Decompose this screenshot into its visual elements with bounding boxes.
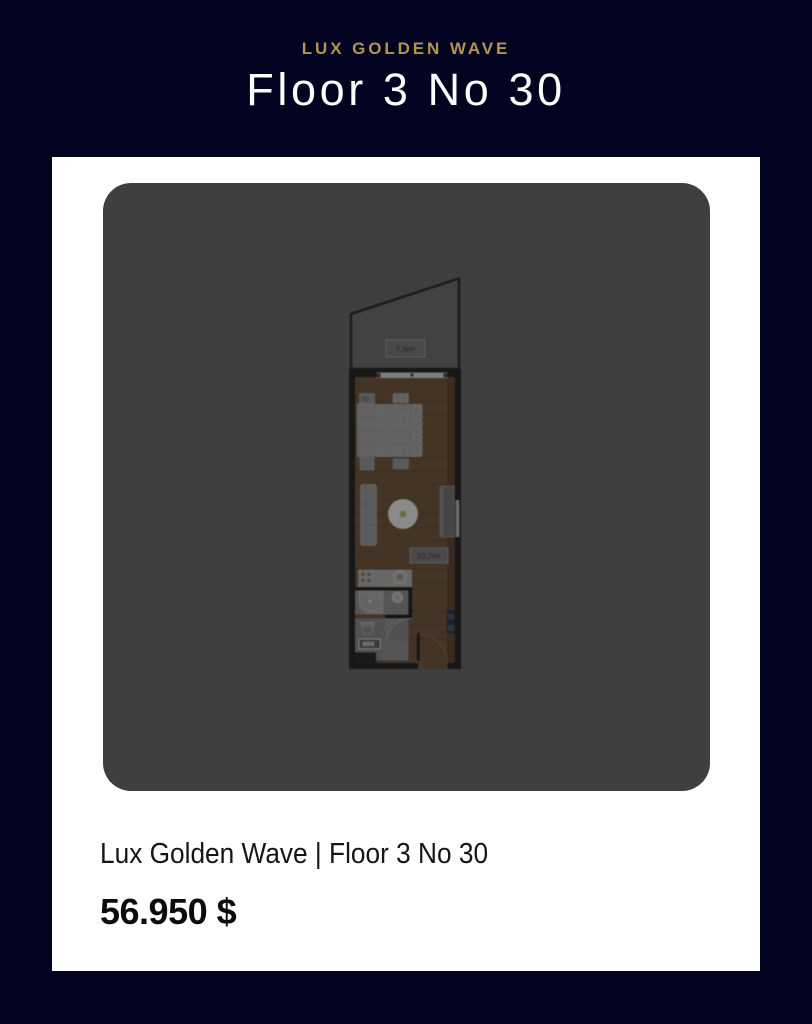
svg-text:7,3m²: 7,3m² (396, 345, 416, 354)
svg-text:22,7m²: 22,7m² (417, 552, 441, 561)
